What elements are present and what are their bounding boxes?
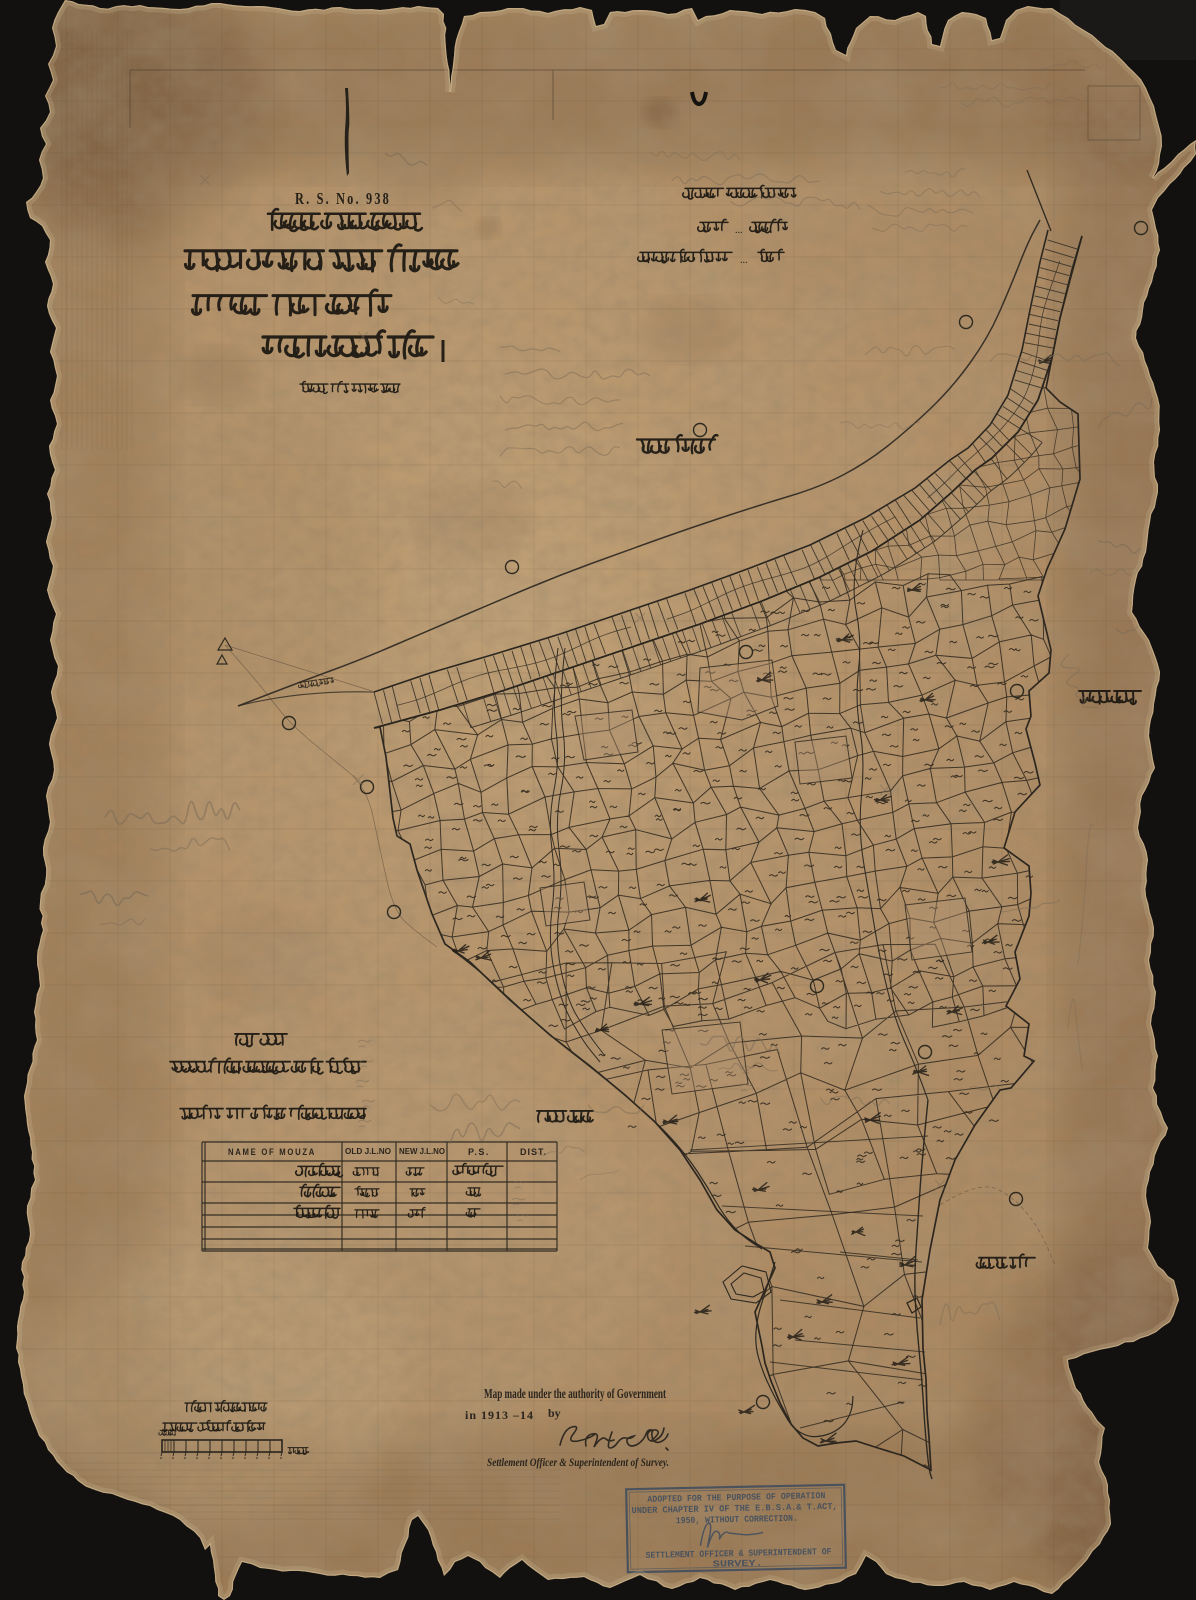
svg-text:in 1913 –14: in 1913 –14 [465, 1408, 534, 1422]
svg-text:...: ... [735, 225, 743, 236]
svg-text:Map made under the authority o: Map made under the authority of Governme… [484, 1387, 666, 1402]
svg-text:NEW J.L.NO: NEW J.L.NO [399, 1147, 445, 1156]
svg-text:P.S.: P.S. [468, 1147, 490, 1157]
svg-text:by: by [548, 1406, 561, 1420]
svg-text:SURVEY.: SURVEY. [713, 1558, 763, 1569]
svg-text:R. S. No. 938: R. S. No. 938 [295, 189, 391, 208]
svg-text:Settlement Officer & Superinte: Settlement Officer & Superintendent of S… [487, 1455, 669, 1469]
svg-text:...: ... [740, 255, 748, 266]
svg-text:NAME OF MOUZA: NAME OF MOUZA [228, 1147, 316, 1157]
svg-text:OLD J.L.NO: OLD J.L.NO [345, 1147, 391, 1156]
